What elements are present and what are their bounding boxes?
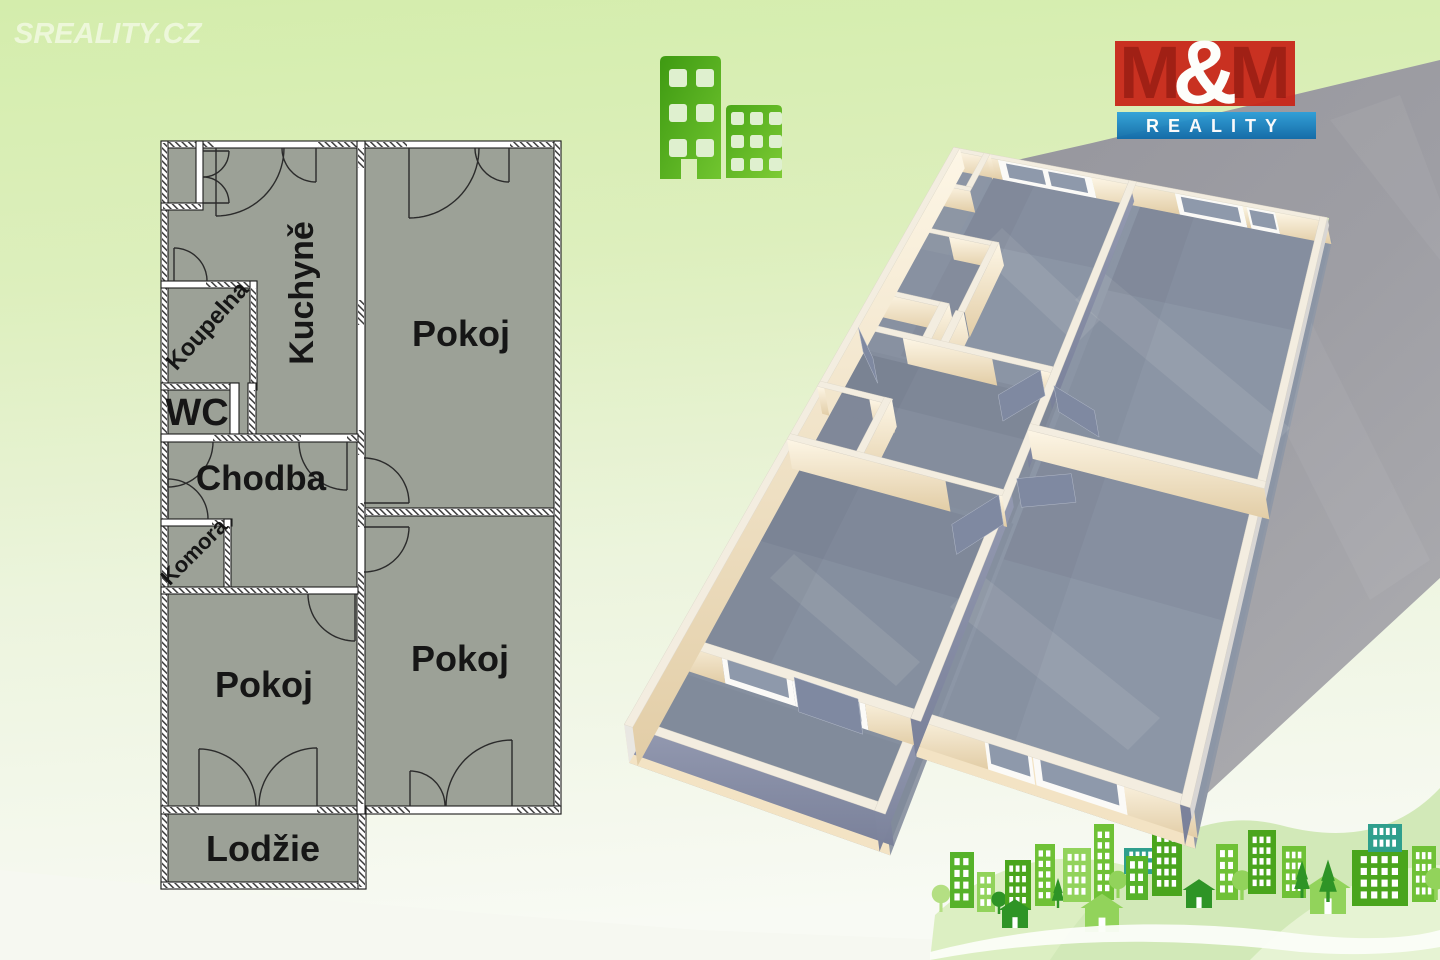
- svg-text:&: &: [1173, 23, 1238, 123]
- svg-text:M: M: [1229, 31, 1291, 114]
- svg-text:Pokoj: Pokoj: [412, 313, 510, 354]
- svg-text:Kuchyně: Kuchyně: [283, 221, 321, 365]
- svg-text:Pokoj: Pokoj: [411, 638, 509, 679]
- svg-text:SREALITY.CZ: SREALITY.CZ: [14, 18, 203, 50]
- svg-text:WC: WC: [165, 392, 228, 434]
- svg-text:Lodžie: Lodžie: [206, 828, 320, 869]
- svg-text:Chodba: Chodba: [196, 459, 327, 498]
- svg-text:REALITY: REALITY: [1146, 116, 1286, 136]
- svg-text:Pokoj: Pokoj: [215, 664, 313, 705]
